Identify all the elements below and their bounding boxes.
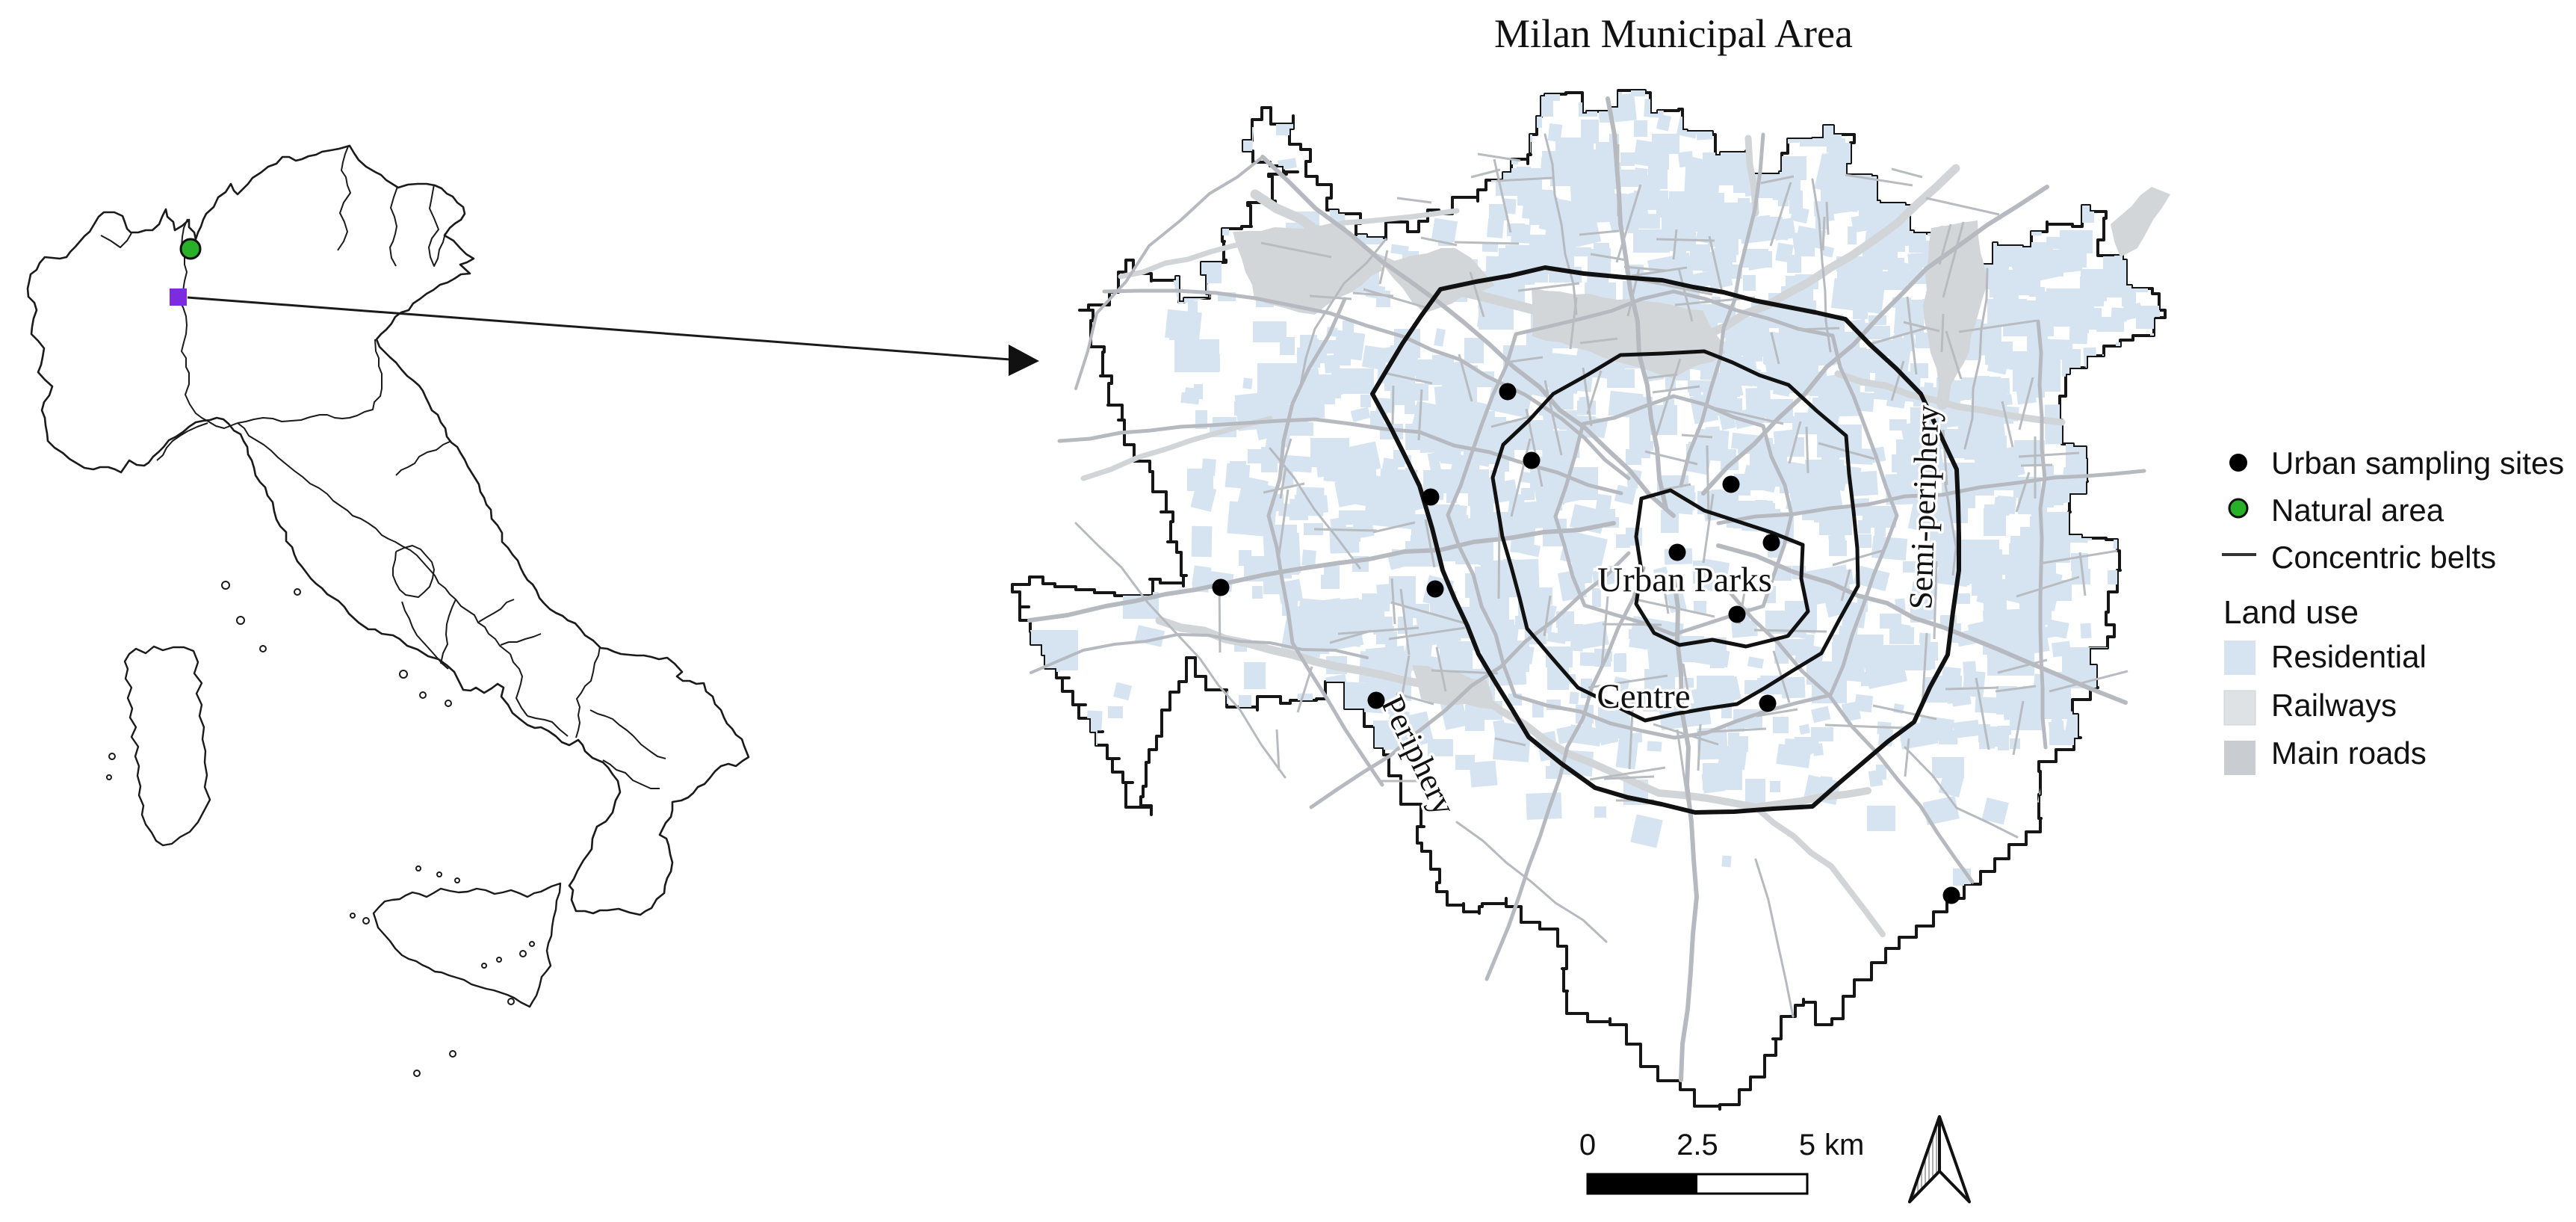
svg-text:Railways: Railways — [2271, 688, 2397, 723]
svg-text:Urban sampling sites: Urban sampling sites — [2271, 445, 2564, 481]
svg-text:km: km — [1824, 1129, 1864, 1161]
svg-text:Milan Municipal Area: Milan Municipal Area — [1494, 11, 1853, 56]
svg-text:Main roads: Main roads — [2271, 735, 2427, 771]
svg-text:Semi-periphery: Semi-periphery — [1902, 404, 1946, 610]
svg-text:0: 0 — [1579, 1129, 1596, 1161]
svg-text:5: 5 — [1799, 1129, 1815, 1161]
svg-text:2.5: 2.5 — [1676, 1129, 1718, 1161]
svg-text:Concentric belts: Concentric belts — [2271, 540, 2496, 575]
svg-text:Residential: Residential — [2271, 639, 2427, 674]
svg-text:Centre: Centre — [1597, 677, 1690, 716]
svg-text:Land use: Land use — [2223, 594, 2359, 631]
svg-text:Natural area: Natural area — [2271, 493, 2445, 528]
svg-text:Urban Parks: Urban Parks — [1597, 561, 1772, 599]
